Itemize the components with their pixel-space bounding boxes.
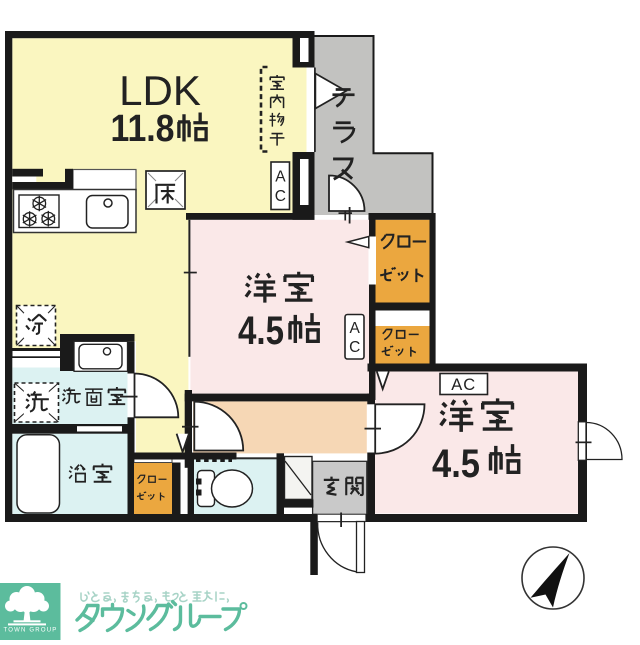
svg-text:11.8: 11.8 — [111, 108, 175, 150]
svg-text:4.5: 4.5 — [432, 442, 480, 486]
svg-text:4.5: 4.5 — [238, 309, 284, 353]
svg-text:LDK: LDK — [119, 67, 201, 114]
svg-text:A: A — [350, 320, 361, 337]
svg-text:TOWN GROUP: TOWN GROUP — [4, 628, 58, 634]
svg-text:C: C — [349, 339, 360, 356]
svg-text:C: C — [275, 188, 286, 205]
svg-text:A: A — [275, 169, 286, 186]
svg-text:AC: AC — [451, 376, 476, 394]
